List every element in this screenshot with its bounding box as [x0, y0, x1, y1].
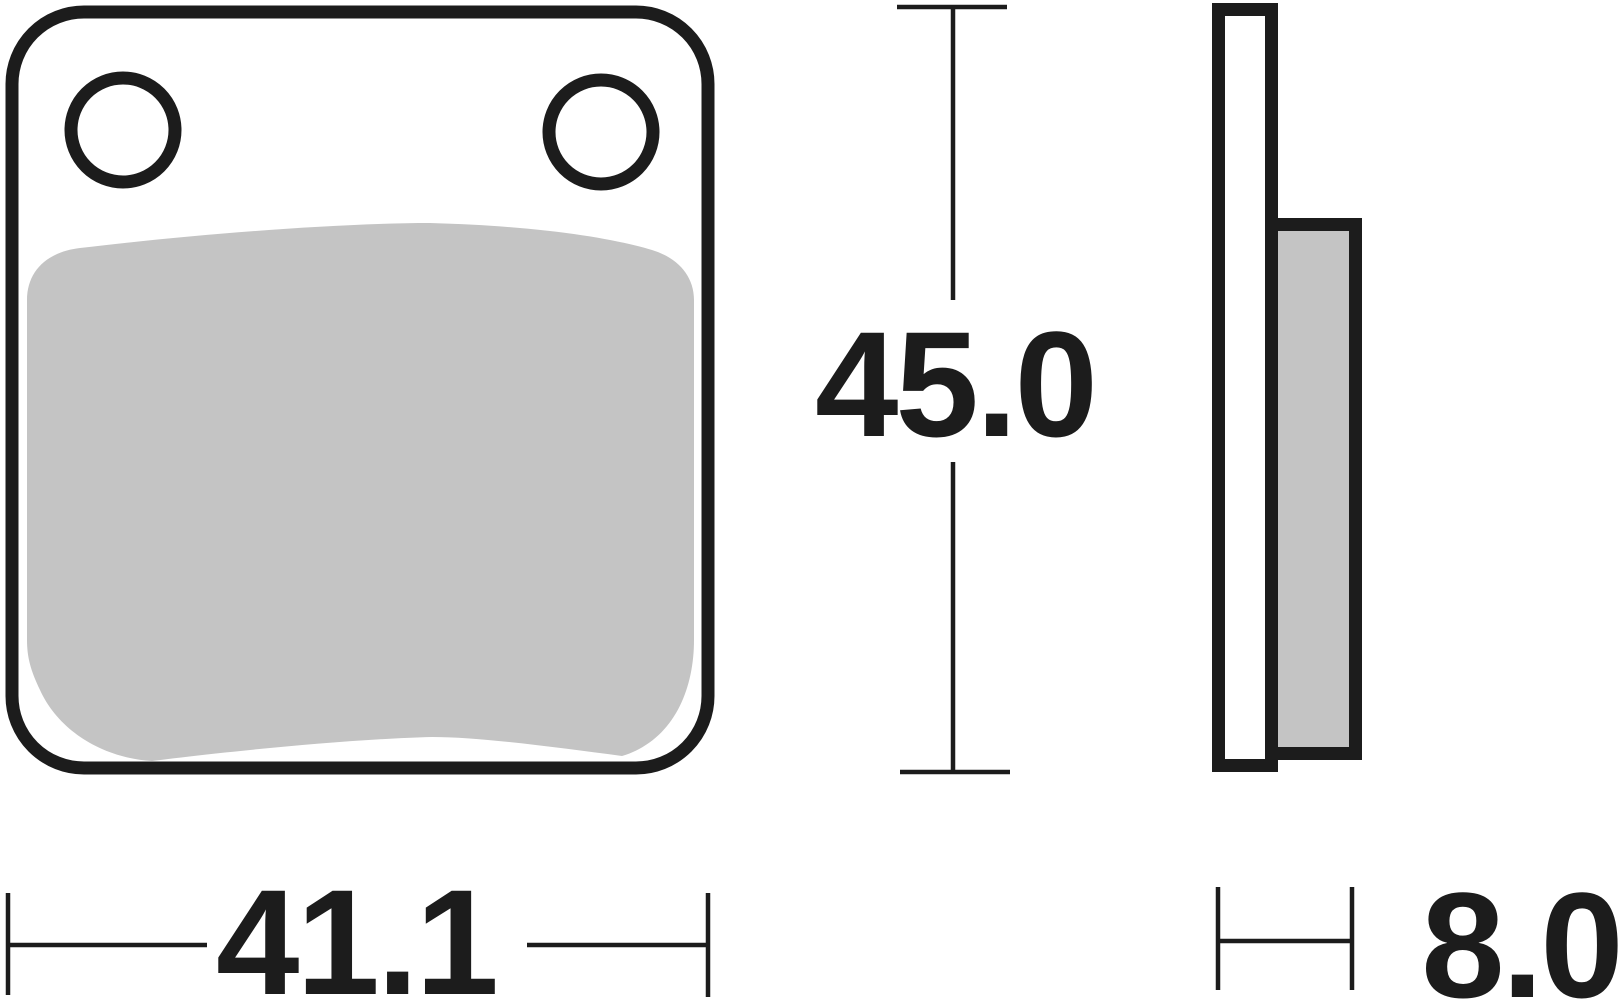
- brake-pad-technical-drawing: 45.0 41.1 8.0: [0, 0, 1623, 1000]
- drawing-canvas: [0, 0, 1623, 1000]
- front-view: [12, 12, 708, 768]
- backing-plate-side: [1219, 10, 1272, 766]
- mounting-hole-left: [71, 78, 175, 182]
- friction-pad-front: [27, 223, 694, 761]
- width-dimension-label: 41.1: [216, 867, 496, 1000]
- mounting-hole-right: [549, 80, 653, 184]
- thickness-dimension-label: 8.0: [1421, 870, 1621, 1000]
- height-dimension-label: 45.0: [815, 309, 1095, 459]
- thickness-dimension-lines: [1218, 887, 1352, 990]
- friction-pad-side: [1272, 225, 1356, 754]
- side-view: [1219, 10, 1356, 766]
